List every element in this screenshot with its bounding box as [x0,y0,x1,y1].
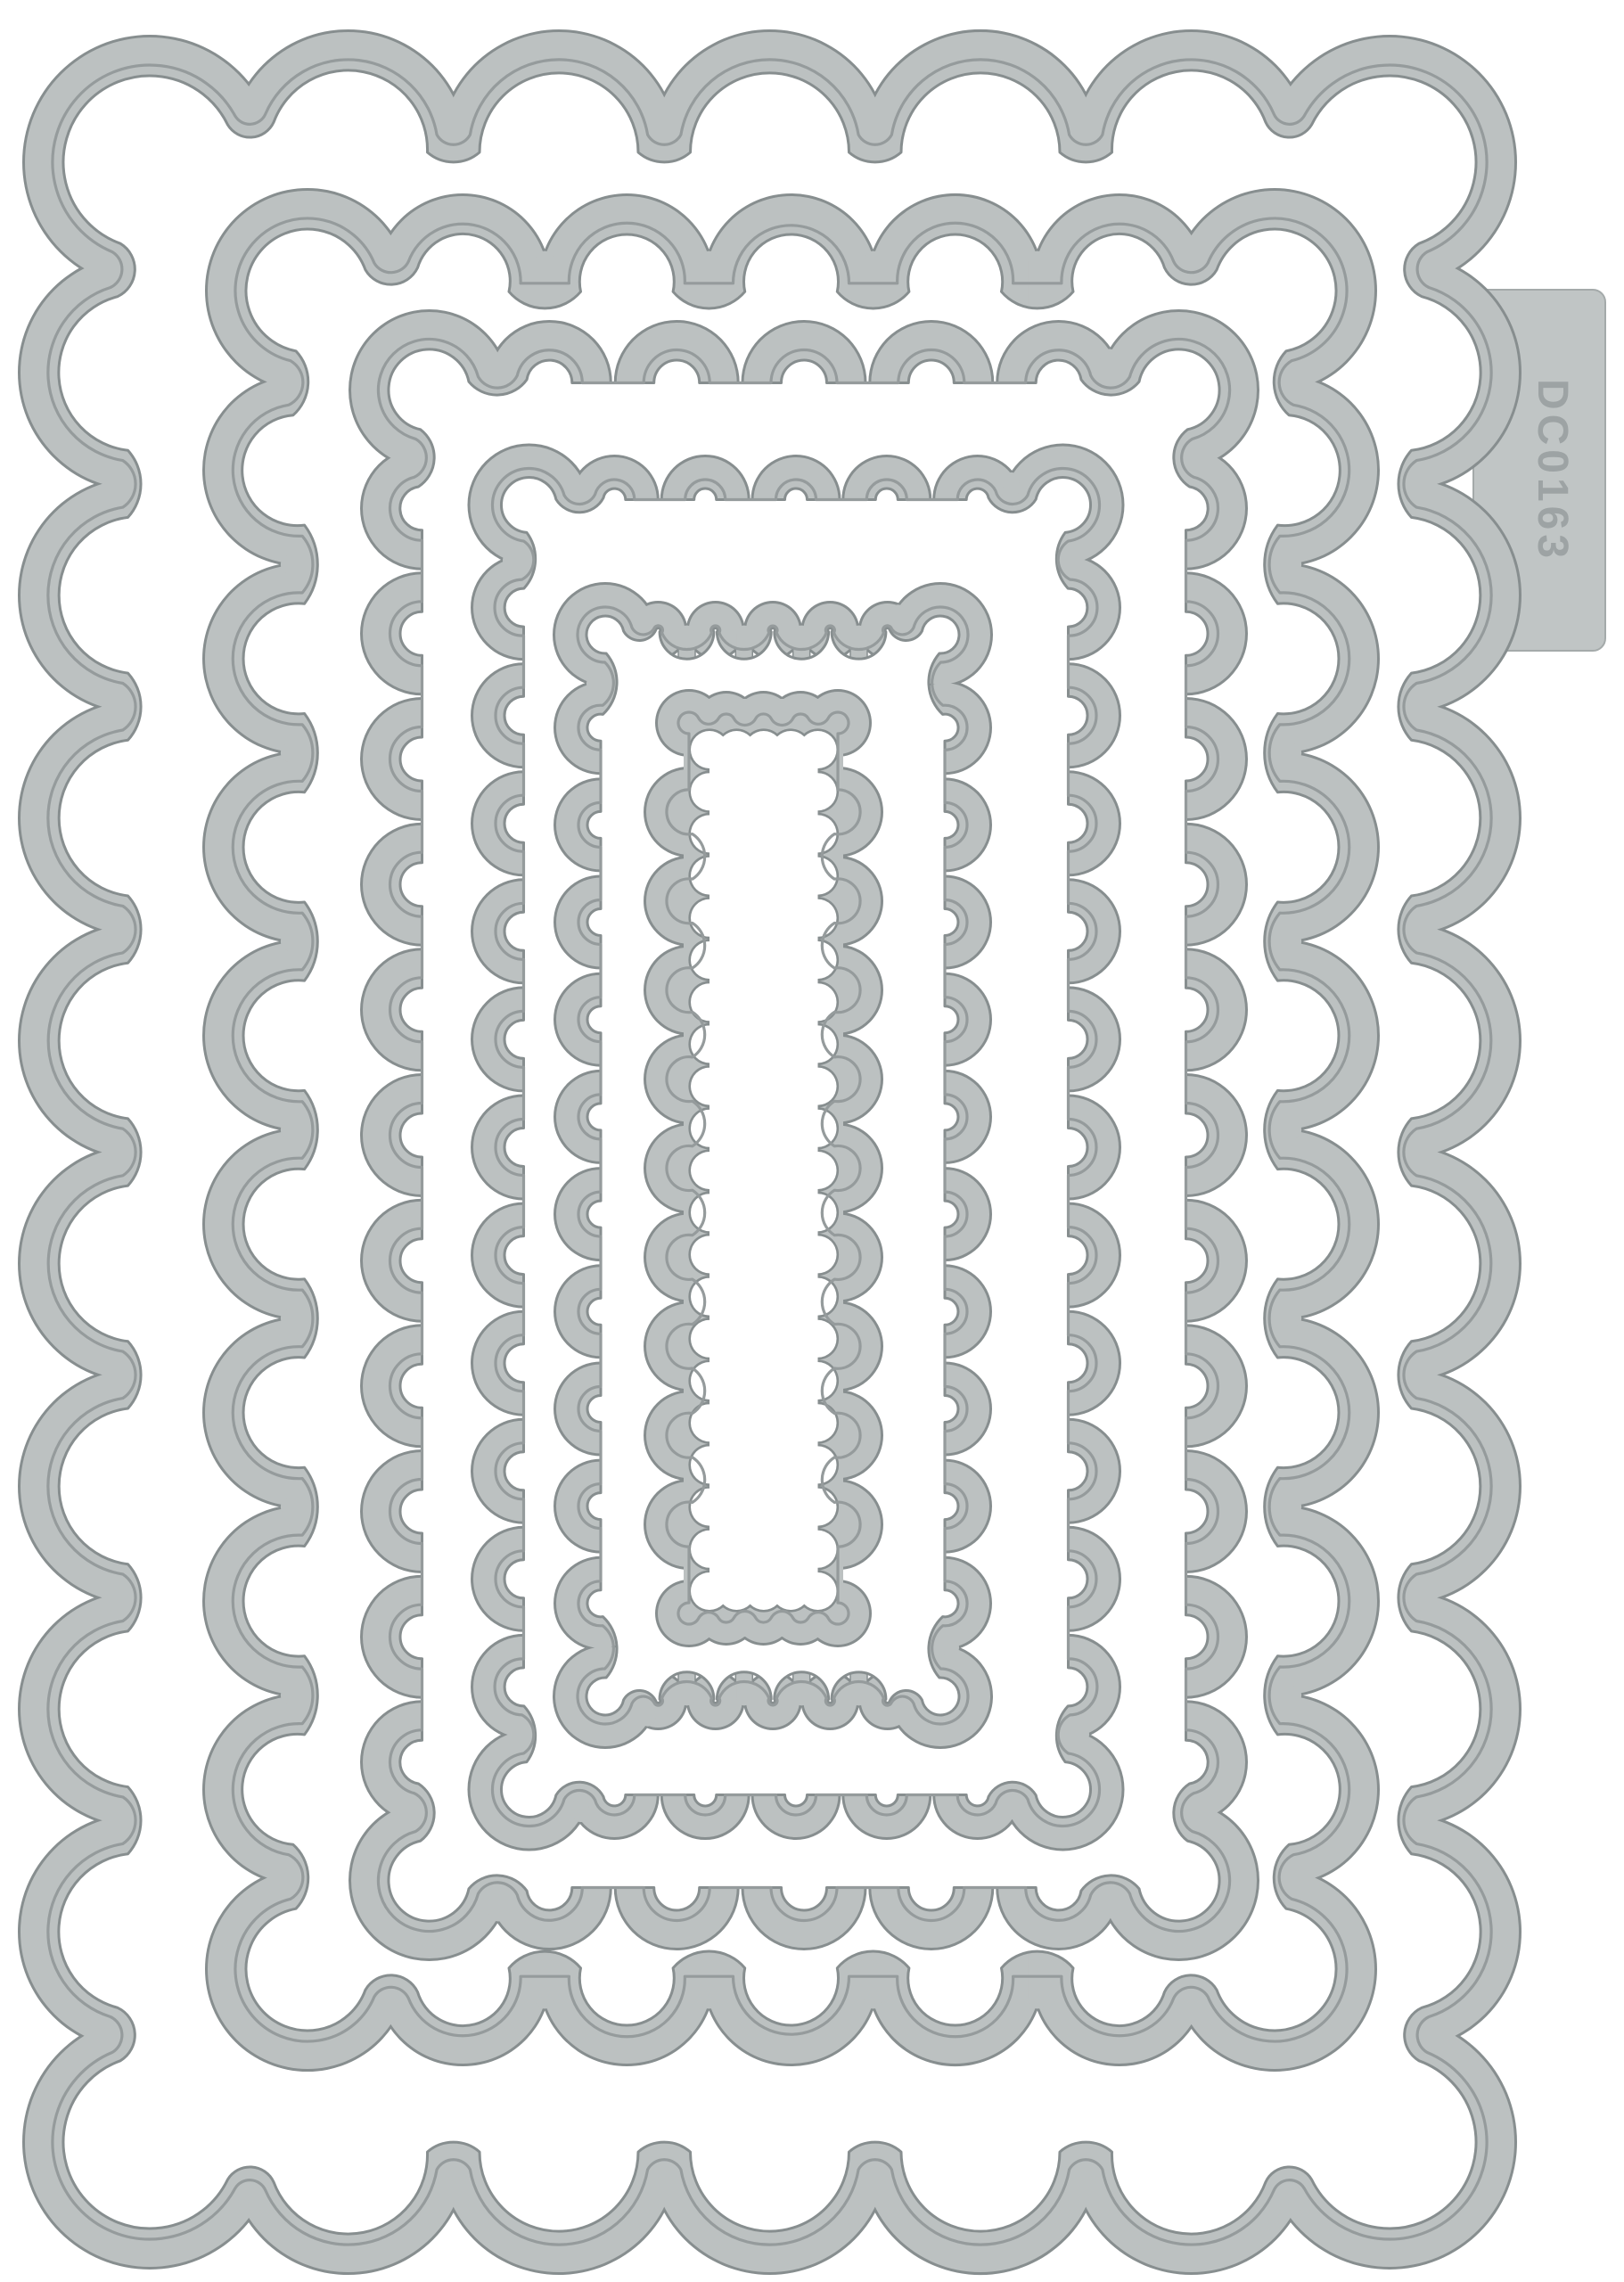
svg-text:DC0163: DC0163 [1529,379,1576,562]
